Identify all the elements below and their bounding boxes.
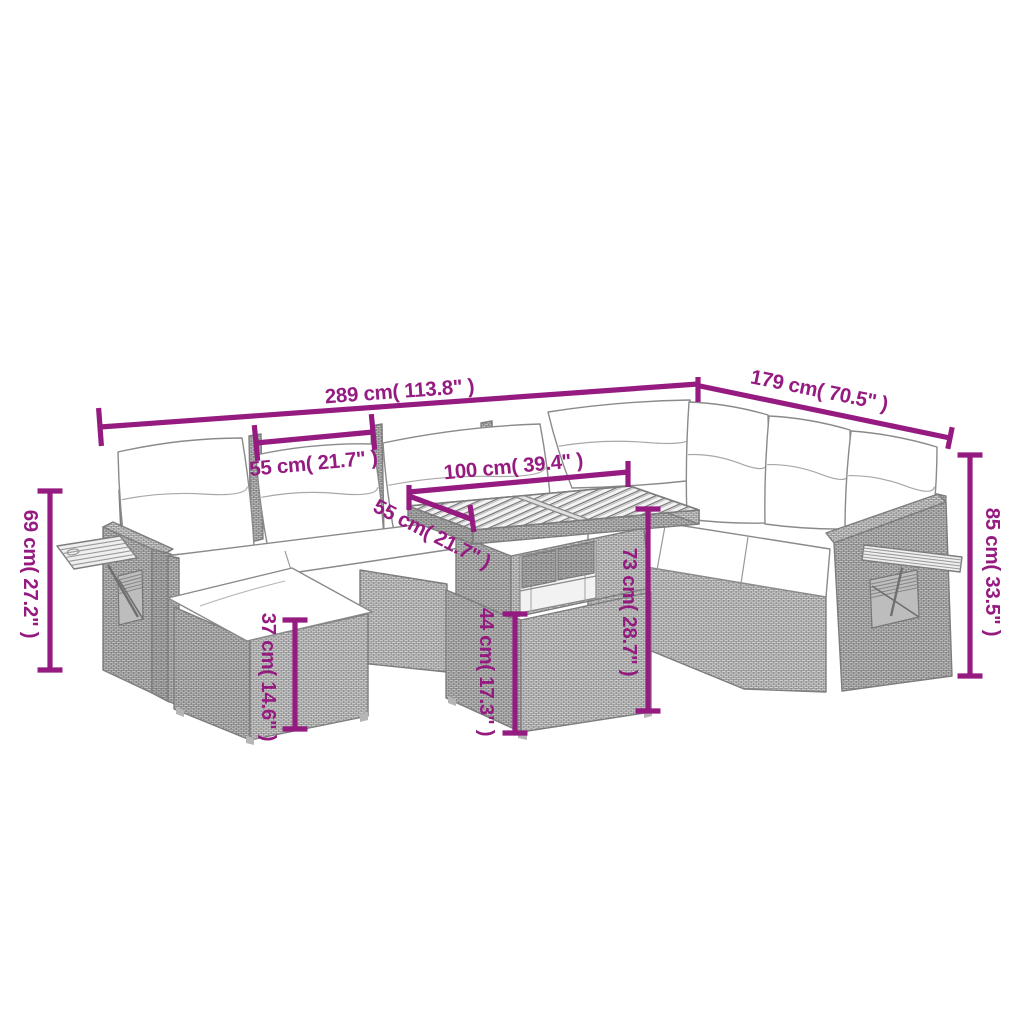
svg-text:73 cm( 28.7" ): 73 cm( 28.7" ) [618,548,641,677]
svg-text:69 cm( 27.2" ): 69 cm( 27.2" ) [19,510,42,639]
svg-text:44 cm( 17.3" ): 44 cm( 17.3" ) [475,608,498,737]
svg-text:37 cm( 14.6" ): 37 cm( 14.6" ) [257,613,280,742]
svg-text:85 cm( 33.5" ): 85 cm( 33.5" ) [981,508,1004,637]
